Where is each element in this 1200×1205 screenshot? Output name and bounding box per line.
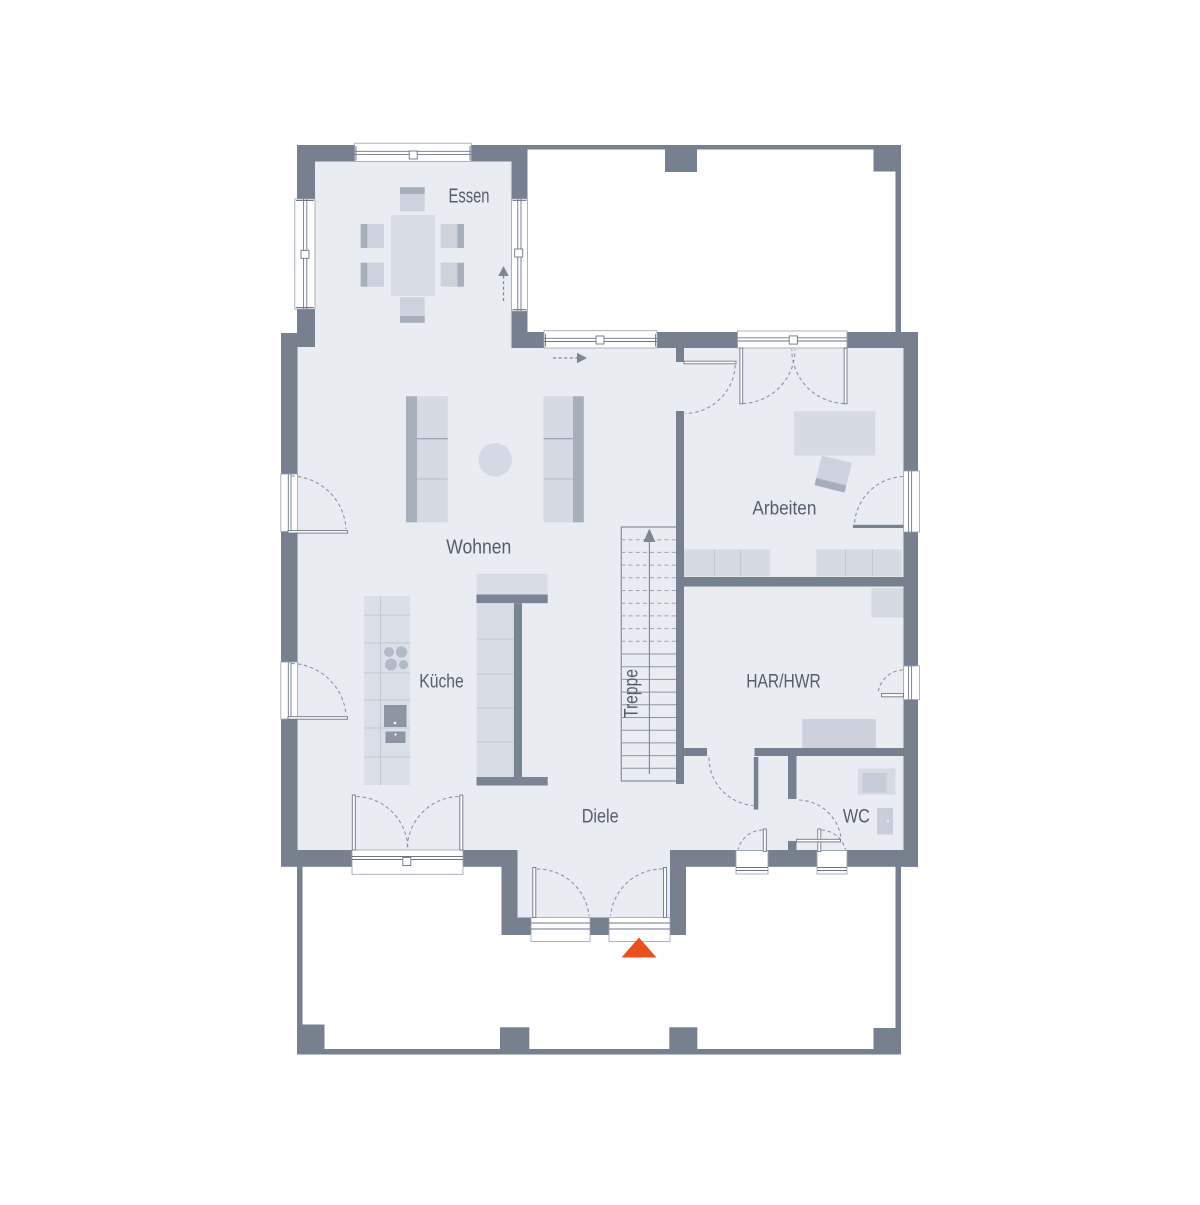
svg-text:Treppe: Treppe — [622, 669, 643, 718]
svg-text:Arbeiten: Arbeiten — [752, 498, 816, 520]
svg-text:Küche: Küche — [419, 672, 464, 693]
svg-text:Essen: Essen — [449, 186, 490, 208]
svg-text:HAR/HWR: HAR/HWR — [746, 672, 821, 693]
svg-text:WC: WC — [843, 806, 870, 828]
svg-text:Wohnen: Wohnen — [446, 537, 511, 559]
svg-text:Diele: Diele — [582, 807, 619, 828]
